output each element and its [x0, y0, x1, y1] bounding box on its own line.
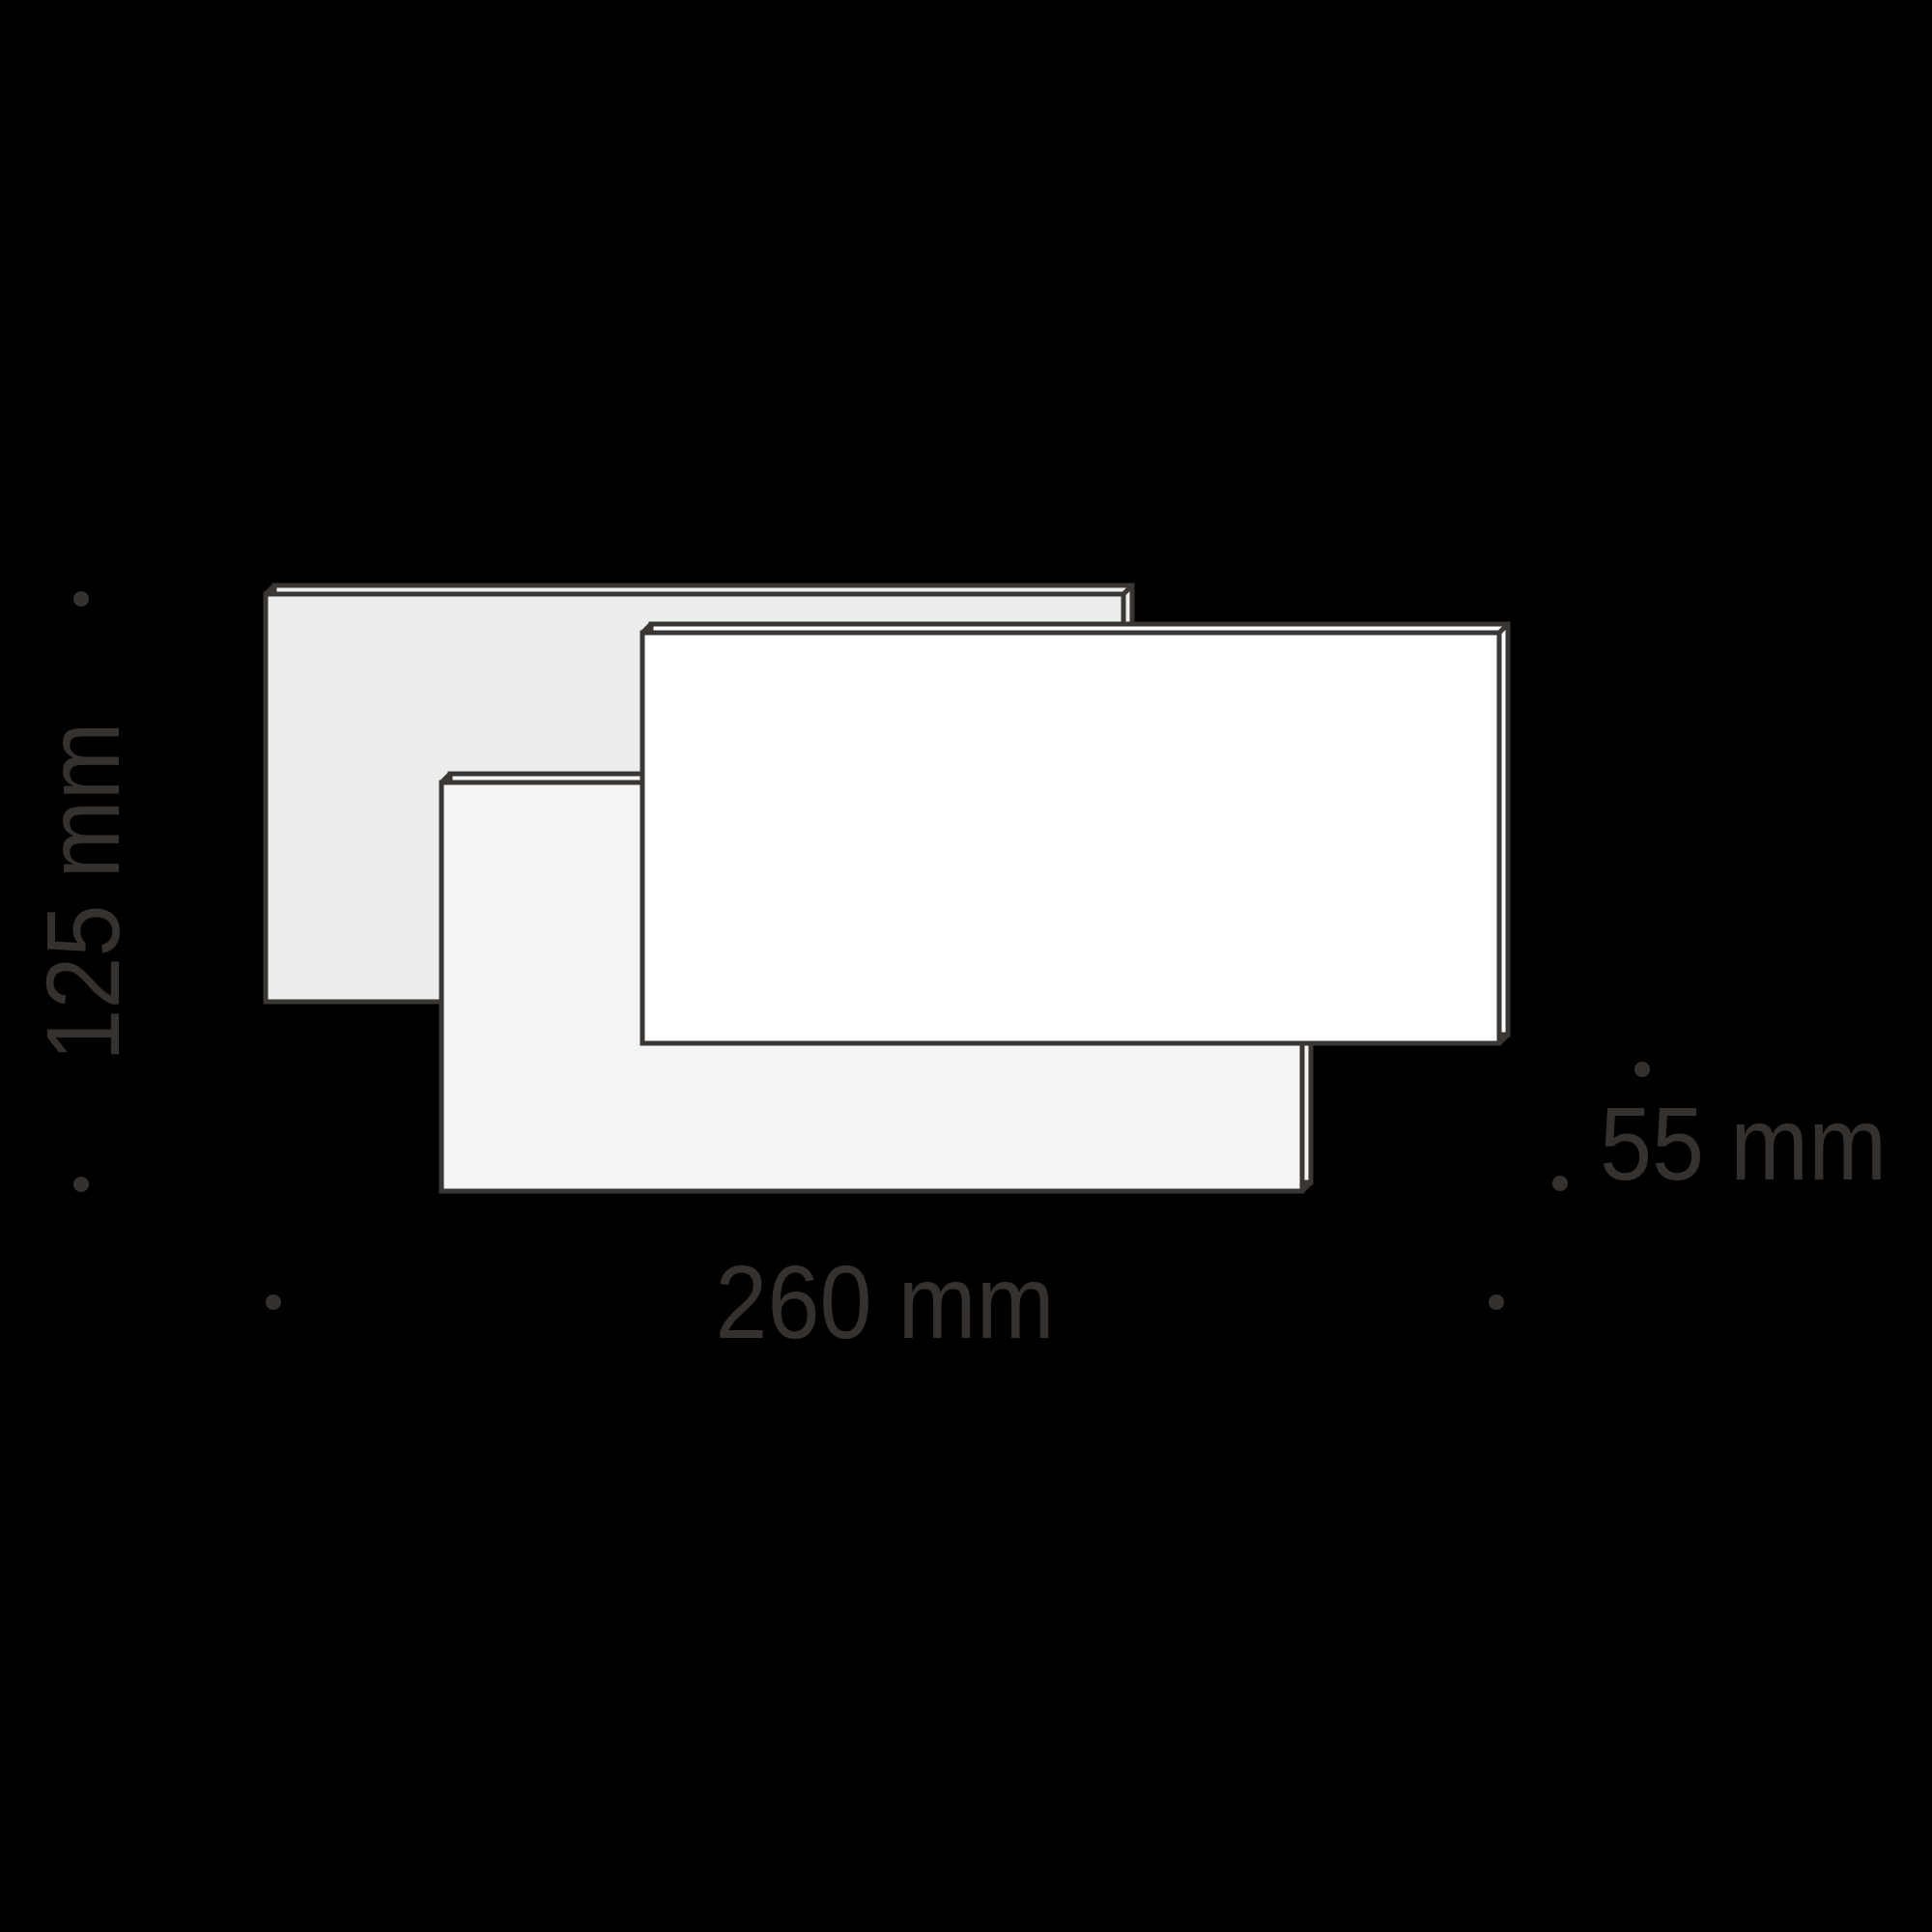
lamp-panels-drawing: [0, 0, 1932, 1932]
dimension-dot: [73, 1177, 89, 1192]
front-panel-front-face: [642, 633, 1499, 1043]
height-dimension-label: 125 mm: [31, 722, 135, 1061]
depth-dimension-label: 55 mm: [1600, 1092, 1887, 1196]
dimension-dot: [1489, 1294, 1504, 1310]
width-dimension-label: 260 mm: [715, 1250, 1054, 1354]
dimension-dot: [266, 1294, 281, 1310]
dimension-dot: [1634, 1062, 1650, 1077]
dimension-dot: [1552, 1176, 1568, 1191]
dimension-dot: [73, 591, 89, 607]
dimension-diagram: 125 mm 260 mm 55 mm: [0, 0, 1932, 1932]
